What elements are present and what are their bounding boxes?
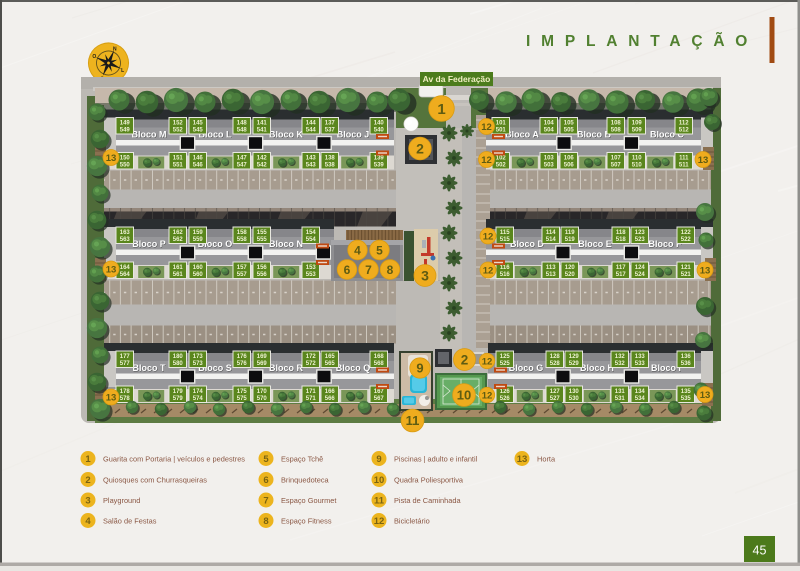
svg-text:160: 160 <box>193 265 204 271</box>
svg-text:565: 565 <box>325 361 336 367</box>
svg-text:8: 8 <box>263 516 268 527</box>
svg-text:Av da Federação: Av da Federação <box>423 74 491 84</box>
svg-text:6: 6 <box>344 263 351 277</box>
svg-text:528: 528 <box>550 361 561 367</box>
svg-text:Bloco J: Bloco J <box>337 130 370 140</box>
svg-text:137: 137 <box>325 121 336 127</box>
svg-text:Bloco H: Bloco H <box>580 363 614 373</box>
svg-text:Bloco B: Bloco B <box>577 130 612 140</box>
svg-text:IMPLANTAÇÃO: IMPLANTAÇÃO <box>526 32 758 50</box>
svg-text:180: 180 <box>173 354 184 360</box>
svg-text:542: 542 <box>257 163 268 169</box>
svg-text:537: 537 <box>325 128 336 134</box>
svg-text:123: 123 <box>635 230 646 236</box>
svg-text:1: 1 <box>85 454 91 465</box>
svg-text:577: 577 <box>120 361 131 367</box>
svg-text:530: 530 <box>569 396 580 402</box>
svg-text:12: 12 <box>483 265 494 276</box>
svg-text:178: 178 <box>120 389 131 395</box>
svg-text:113: 113 <box>546 265 556 271</box>
svg-text:176: 176 <box>237 354 248 360</box>
svg-text:152: 152 <box>173 121 184 127</box>
svg-text:154: 154 <box>306 230 317 236</box>
svg-text:545: 545 <box>193 128 204 134</box>
svg-text:503: 503 <box>544 163 555 169</box>
svg-text:546: 546 <box>193 163 204 169</box>
svg-text:515: 515 <box>500 237 511 243</box>
svg-text:110: 110 <box>632 156 642 162</box>
svg-text:108: 108 <box>611 121 622 127</box>
svg-text:502: 502 <box>496 163 507 169</box>
svg-text:Bloco P: Bloco P <box>132 239 166 249</box>
svg-text:Espaço Tchê: Espaço Tchê <box>281 455 323 464</box>
svg-text:148: 148 <box>237 121 248 127</box>
svg-text:105: 105 <box>564 121 575 127</box>
svg-text:2: 2 <box>85 475 90 486</box>
svg-text:138: 138 <box>325 156 336 162</box>
svg-text:561: 561 <box>173 272 184 278</box>
svg-text:Bloco Q: Bloco Q <box>336 363 371 373</box>
svg-text:112: 112 <box>679 121 689 127</box>
svg-text:151: 151 <box>173 156 184 162</box>
svg-text:8: 8 <box>387 263 394 277</box>
svg-text:501: 501 <box>496 128 507 134</box>
svg-text:507: 507 <box>611 163 622 169</box>
svg-text:13: 13 <box>517 454 528 465</box>
svg-text:130: 130 <box>569 389 580 395</box>
svg-text:103: 103 <box>544 156 555 162</box>
svg-text:13: 13 <box>106 153 117 164</box>
svg-text:146: 146 <box>193 156 204 162</box>
svg-text:523: 523 <box>635 237 646 243</box>
svg-text:Brinquedoteca: Brinquedoteca <box>281 476 330 485</box>
svg-text:534: 534 <box>635 396 646 402</box>
svg-text:508: 508 <box>611 128 622 134</box>
svg-text:9: 9 <box>416 361 423 376</box>
svg-text:Bloco D: Bloco D <box>510 239 545 249</box>
svg-text:Quadra Poliesportiva: Quadra Poliesportiva <box>394 476 464 485</box>
svg-text:553: 553 <box>306 272 317 278</box>
svg-text:129: 129 <box>569 354 580 360</box>
svg-text:149: 149 <box>120 121 131 127</box>
svg-text:177: 177 <box>120 354 131 360</box>
svg-text:169: 169 <box>257 354 268 360</box>
svg-text:Salão de Festas: Salão de Festas <box>103 517 157 526</box>
svg-text:519: 519 <box>565 237 576 243</box>
svg-text:111: 111 <box>679 156 689 162</box>
svg-text:540: 540 <box>374 128 385 134</box>
svg-text:568: 568 <box>374 361 385 367</box>
svg-text:166: 166 <box>325 389 336 395</box>
svg-text:13: 13 <box>700 390 711 401</box>
svg-text:522: 522 <box>681 237 692 243</box>
svg-text:179: 179 <box>173 389 184 395</box>
svg-text:12: 12 <box>481 122 492 133</box>
svg-text:Bloco M: Bloco M <box>132 130 167 140</box>
svg-text:551: 551 <box>173 163 184 169</box>
svg-text:Bloco E: Bloco E <box>578 239 612 249</box>
svg-text:559: 559 <box>193 237 204 243</box>
svg-text:578: 578 <box>120 396 131 402</box>
svg-text:557: 557 <box>237 272 248 278</box>
svg-text:510: 510 <box>632 163 643 169</box>
svg-text:572: 572 <box>306 361 317 367</box>
svg-text:116: 116 <box>500 265 510 271</box>
svg-text:575: 575 <box>237 396 248 402</box>
svg-text:3: 3 <box>85 495 90 506</box>
svg-text:124: 124 <box>635 265 646 271</box>
svg-text:576: 576 <box>237 361 248 367</box>
svg-text:512: 512 <box>679 128 690 134</box>
svg-text:165: 165 <box>325 354 336 360</box>
svg-text:564: 564 <box>120 272 131 278</box>
svg-text:549: 549 <box>120 128 131 134</box>
svg-text:533: 533 <box>635 361 646 367</box>
svg-text:140: 140 <box>374 121 385 127</box>
svg-text:2: 2 <box>416 141 424 157</box>
svg-text:121: 121 <box>681 265 692 271</box>
svg-text:544: 544 <box>306 128 317 134</box>
svg-text:539: 539 <box>374 163 385 169</box>
svg-text:127: 127 <box>550 389 561 395</box>
svg-text:517: 517 <box>616 272 627 278</box>
svg-text:525: 525 <box>500 361 511 367</box>
svg-text:139: 139 <box>374 156 385 162</box>
svg-text:580: 580 <box>173 361 184 367</box>
svg-text:12: 12 <box>482 390 493 401</box>
svg-text:164: 164 <box>120 265 131 271</box>
svg-text:134: 134 <box>635 389 646 395</box>
svg-text:171: 171 <box>306 389 317 395</box>
svg-text:554: 554 <box>306 237 317 243</box>
svg-text:535: 535 <box>681 396 692 402</box>
svg-text:541: 541 <box>257 128 268 134</box>
svg-text:107: 107 <box>611 156 622 162</box>
svg-text:132: 132 <box>615 354 626 360</box>
svg-text:125: 125 <box>500 354 511 360</box>
svg-text:156: 156 <box>257 265 268 271</box>
svg-text:163: 163 <box>120 230 131 236</box>
svg-text:45: 45 <box>753 544 767 558</box>
svg-text:Quiosques com Churrasqueiras: Quiosques com Churrasqueiras <box>103 476 207 485</box>
svg-text:506: 506 <box>564 163 575 169</box>
svg-text:13: 13 <box>700 265 711 276</box>
svg-text:552: 552 <box>173 128 184 134</box>
svg-text:3: 3 <box>421 268 429 284</box>
svg-text:142: 142 <box>257 156 268 162</box>
svg-text:Espaço Gourmet: Espaço Gourmet <box>281 496 336 505</box>
svg-text:Bicicletário: Bicicletário <box>394 517 430 526</box>
svg-text:7: 7 <box>263 495 268 506</box>
svg-text:157: 157 <box>237 265 248 271</box>
svg-text:Bloco K: Bloco K <box>269 130 304 140</box>
svg-text:170: 170 <box>257 389 268 395</box>
svg-text:579: 579 <box>173 396 184 402</box>
svg-text:12: 12 <box>483 231 494 242</box>
svg-text:135: 135 <box>681 389 692 395</box>
svg-text:Bloco R: Bloco R <box>269 363 304 373</box>
svg-text:168: 168 <box>374 354 385 360</box>
svg-text:12: 12 <box>374 516 385 527</box>
svg-text:147: 147 <box>237 156 248 162</box>
svg-text:550: 550 <box>120 163 131 169</box>
svg-text:520: 520 <box>565 272 576 278</box>
svg-text:102: 102 <box>496 156 507 162</box>
svg-text:521: 521 <box>681 272 692 278</box>
svg-text:145: 145 <box>193 121 204 127</box>
svg-text:173: 173 <box>193 354 204 360</box>
svg-text:529: 529 <box>569 361 580 367</box>
svg-text:547: 547 <box>237 163 248 169</box>
svg-text:532: 532 <box>615 361 626 367</box>
svg-text:7: 7 <box>365 263 372 277</box>
svg-text:11: 11 <box>406 413 420 428</box>
svg-text:117: 117 <box>616 265 626 271</box>
svg-text:Piscinas | adulto e infantil: Piscinas | adulto e infantil <box>394 455 478 464</box>
svg-text:120: 120 <box>565 265 576 271</box>
svg-text:136: 136 <box>681 354 692 360</box>
svg-text:159: 159 <box>193 230 204 236</box>
svg-text:514: 514 <box>546 237 557 243</box>
svg-text:12: 12 <box>481 155 492 166</box>
svg-text:513: 513 <box>546 272 557 278</box>
svg-text:128: 128 <box>550 354 561 360</box>
svg-text:511: 511 <box>679 163 689 169</box>
svg-text:504: 504 <box>544 128 555 134</box>
svg-text:574: 574 <box>193 396 204 402</box>
svg-text:548: 548 <box>237 128 248 134</box>
svg-text:518: 518 <box>616 237 627 243</box>
svg-text:N: N <box>113 46 117 52</box>
svg-text:538: 538 <box>325 163 336 169</box>
svg-text:167: 167 <box>374 389 385 395</box>
svg-text:Bloco T: Bloco T <box>133 363 167 373</box>
svg-text:4: 4 <box>85 516 91 527</box>
svg-text:118: 118 <box>616 230 626 236</box>
svg-text:4: 4 <box>354 243 361 257</box>
svg-text:114: 114 <box>546 230 556 236</box>
svg-text:11: 11 <box>374 495 385 506</box>
svg-text:10: 10 <box>457 388 471 403</box>
svg-text:569: 569 <box>257 361 268 367</box>
svg-text:155: 155 <box>257 230 268 236</box>
svg-text:566: 566 <box>325 396 336 402</box>
svg-text:556: 556 <box>257 272 268 278</box>
svg-text:562: 562 <box>173 237 184 243</box>
svg-text:2: 2 <box>461 352 469 367</box>
svg-text:558: 558 <box>237 237 248 243</box>
svg-text:161: 161 <box>173 265 184 271</box>
svg-text:10: 10 <box>374 475 385 486</box>
svg-text:141: 141 <box>257 121 268 127</box>
svg-text:13: 13 <box>106 264 117 275</box>
svg-text:Pista de Caminhada: Pista de Caminhada <box>394 496 461 505</box>
svg-text:567: 567 <box>374 396 385 402</box>
svg-text:563: 563 <box>120 237 131 243</box>
svg-text:Espaço Fitness: Espaço Fitness <box>281 517 332 526</box>
svg-text:Guarita com Portaria | veículo: Guarita com Portaria | veículos e pedest… <box>103 455 245 464</box>
svg-text:122: 122 <box>681 230 692 236</box>
svg-text:516: 516 <box>500 272 511 278</box>
svg-text:6: 6 <box>263 475 268 486</box>
svg-text:13: 13 <box>698 155 709 166</box>
svg-text:143: 143 <box>306 156 317 162</box>
svg-text:174: 174 <box>193 389 204 395</box>
svg-text:Playground: Playground <box>103 496 140 505</box>
svg-text:109: 109 <box>632 121 643 127</box>
svg-text:12: 12 <box>482 356 493 367</box>
svg-text:144: 144 <box>306 121 317 127</box>
svg-text:5: 5 <box>376 243 383 257</box>
svg-text:172: 172 <box>306 354 317 360</box>
svg-text:104: 104 <box>544 121 555 127</box>
svg-text:153: 153 <box>306 265 317 271</box>
svg-text:5: 5 <box>263 454 269 465</box>
svg-text:543: 543 <box>306 163 317 169</box>
svg-text:131: 131 <box>615 389 626 395</box>
svg-text:O: O <box>92 54 96 60</box>
svg-text:115: 115 <box>500 230 510 236</box>
svg-text:Bloco N: Bloco N <box>269 239 303 249</box>
svg-text:106: 106 <box>564 156 575 162</box>
svg-text:560: 560 <box>193 272 204 278</box>
svg-text:13: 13 <box>106 392 117 403</box>
svg-text:536: 536 <box>681 361 692 367</box>
svg-text:524: 524 <box>635 272 646 278</box>
svg-text:150: 150 <box>120 156 131 162</box>
svg-text:555: 555 <box>257 237 268 243</box>
svg-text:505: 505 <box>564 128 575 134</box>
svg-text:Horta: Horta <box>537 455 556 464</box>
svg-text:133: 133 <box>635 354 646 360</box>
svg-text:1: 1 <box>437 101 445 118</box>
svg-text:570: 570 <box>257 396 268 402</box>
svg-text:9: 9 <box>376 454 381 465</box>
svg-text:Bloco A: Bloco A <box>505 130 539 140</box>
svg-text:509: 509 <box>632 128 643 134</box>
svg-text:573: 573 <box>193 361 204 367</box>
svg-text:162: 162 <box>173 230 184 236</box>
svg-text:175: 175 <box>237 389 248 395</box>
svg-text:158: 158 <box>237 230 248 236</box>
svg-text:101: 101 <box>496 121 507 127</box>
svg-text:126: 126 <box>500 389 511 395</box>
svg-text:L: L <box>121 68 124 74</box>
svg-text:119: 119 <box>565 230 575 236</box>
